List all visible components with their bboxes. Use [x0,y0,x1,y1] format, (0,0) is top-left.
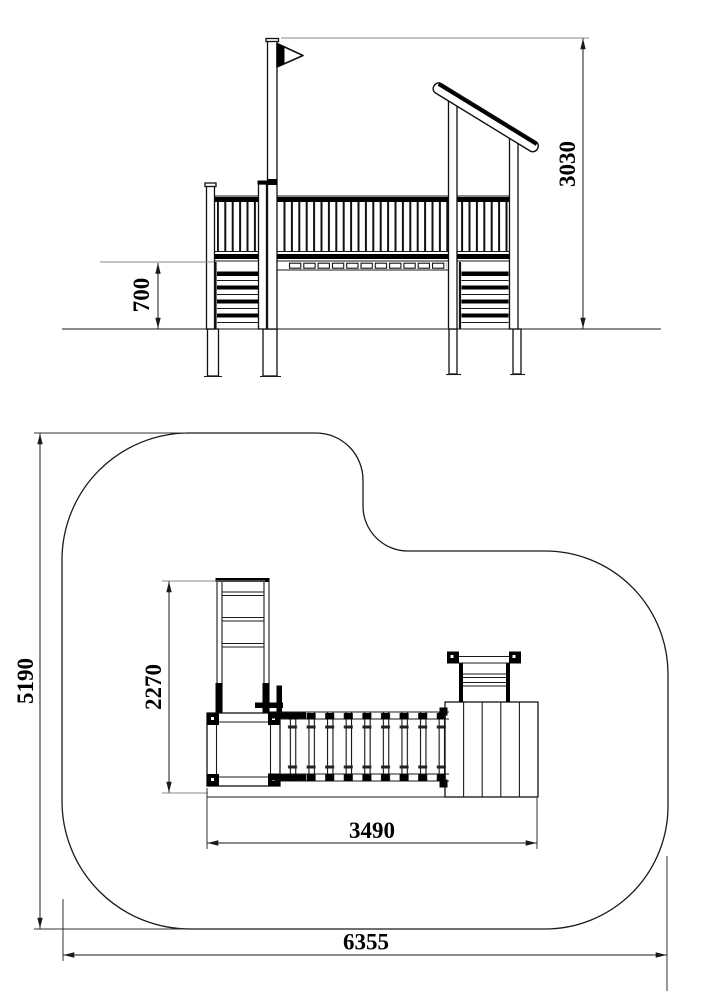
flag-pole-plan [277,686,283,715]
dim-platform-height-label: 700 [129,278,154,313]
roof-post-left [449,97,458,329]
drawing-sheet: 700 3030 [0,0,707,1000]
deck-plank-ends [289,263,447,270]
dim-structure-depth-label: 2270 [141,664,166,710]
dim-safety-area-depth-label: 5190 [13,658,38,704]
dim-structure-width-label: 3490 [349,818,395,843]
left-post-cap [205,183,216,187]
flag-pole-cap [266,39,279,42]
roof-post-right [510,137,519,329]
dim-total-height-label: 3030 [555,141,580,187]
technical-drawing: 700 3030 [0,0,707,1000]
left-post [207,186,215,329]
rear-post [259,184,267,329]
dim-safety-area-width-label: 6355 [343,930,389,955]
balusters-bridge [283,202,448,252]
balusters-left-tower [217,202,261,252]
bridge-planks [284,713,451,782]
paper-background [0,0,707,1000]
balusters-right-tower [458,202,508,252]
bridge-plan [268,708,451,788]
flag-pole-joint [268,179,278,185]
rear-post-cap [258,181,268,185]
